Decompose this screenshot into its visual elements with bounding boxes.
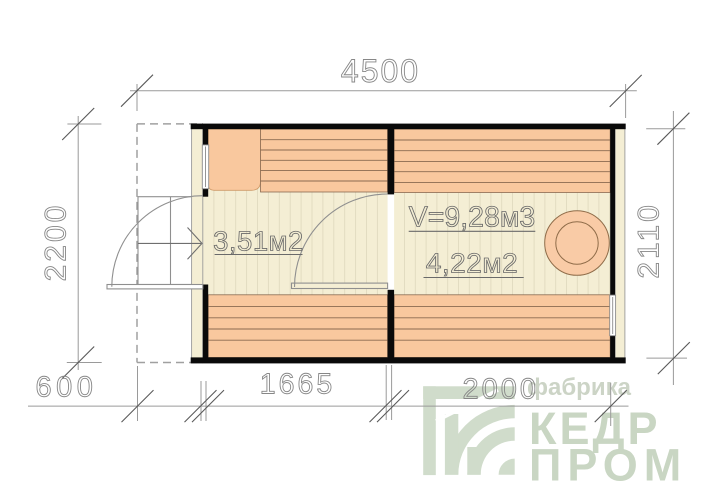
svg-text:V=9,28м3: V=9,28м3 — [409, 202, 536, 234]
svg-text:2110: 2110 — [633, 202, 666, 279]
svg-text:2200: 2200 — [40, 203, 73, 282]
svg-text:4500: 4500 — [341, 53, 420, 89]
svg-text:2000: 2000 — [463, 374, 540, 406]
svg-text:1665: 1665 — [260, 369, 335, 401]
svg-text:4,22м2: 4,22м2 — [426, 248, 518, 279]
svg-text:ПРОМ: ПРОМ — [529, 440, 687, 491]
svg-text:фабрика: фабрика — [527, 374, 632, 401]
svg-text:3,51м2: 3,51м2 — [213, 226, 304, 257]
svg-text:600: 600 — [36, 372, 98, 404]
